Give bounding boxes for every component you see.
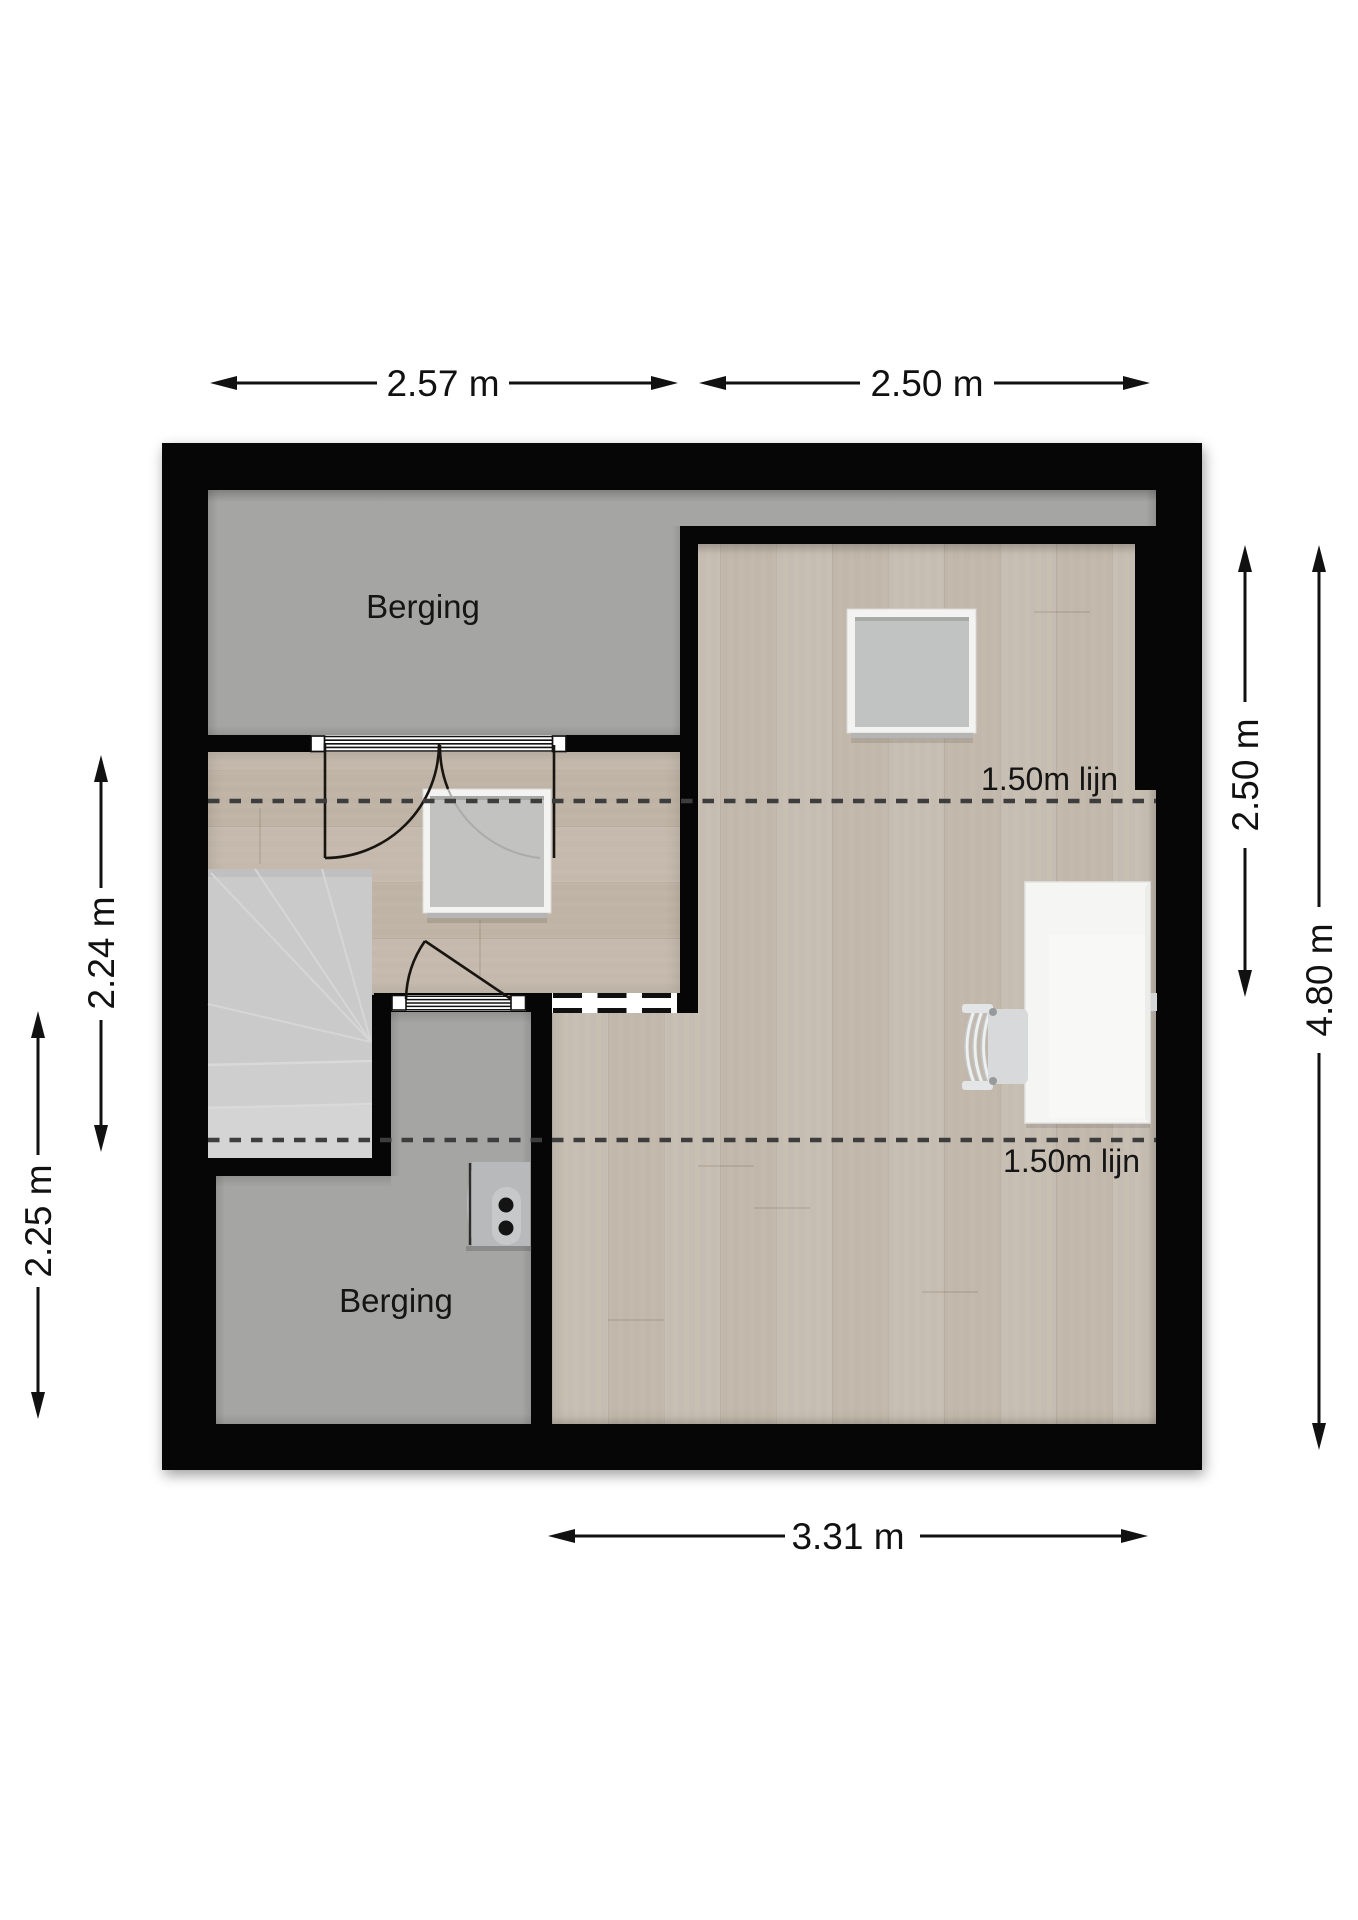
svg-text:2.50 m: 2.50 m	[1225, 718, 1266, 831]
svg-text:2.50 m: 2.50 m	[870, 363, 983, 404]
svg-text:2.57 m: 2.57 m	[386, 363, 499, 404]
svg-text:3.31 m: 3.31 m	[791, 1516, 904, 1557]
svg-text:1.50m lijn: 1.50m lijn	[981, 761, 1118, 797]
svg-text:Berging: Berging	[339, 1282, 453, 1319]
svg-text:2.25 m: 2.25 m	[18, 1164, 59, 1277]
svg-text:1.50m lijn: 1.50m lijn	[1003, 1143, 1140, 1179]
svg-text:4.80 m: 4.80 m	[1299, 923, 1340, 1036]
svg-text:Berging: Berging	[366, 588, 480, 625]
svg-text:2.24 m: 2.24 m	[81, 896, 122, 1009]
